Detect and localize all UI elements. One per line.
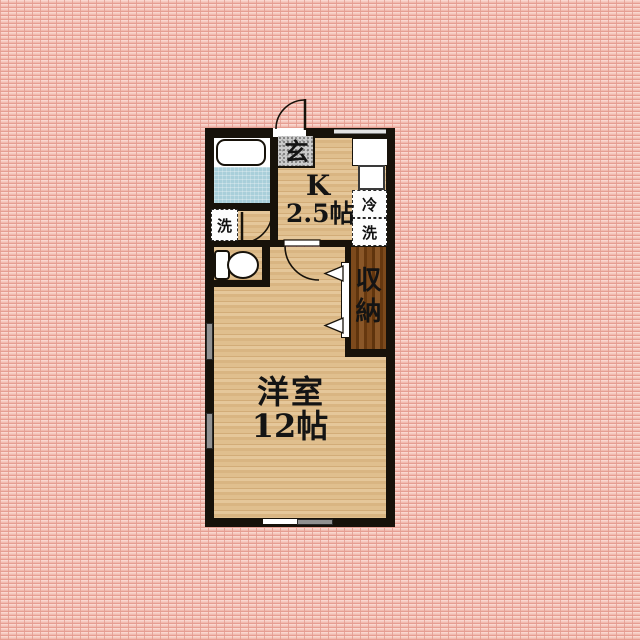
entrance-door-arc	[276, 100, 304, 129]
kitchen-door-arc	[285, 246, 319, 280]
closet-door-arrow-top	[325, 266, 343, 281]
closet-door-arrow-bottom	[325, 318, 343, 333]
bathroom-door-arc	[242, 212, 272, 243]
kitchen-door-leaf	[284, 240, 320, 246]
symbols-layer	[0, 0, 640, 640]
toilet-bowl	[228, 252, 258, 278]
floor-plan: 収 納 玄 冷 洗 洗 K 2.5帖 洋室 12帖	[0, 0, 640, 640]
toilet-tank	[215, 251, 229, 279]
